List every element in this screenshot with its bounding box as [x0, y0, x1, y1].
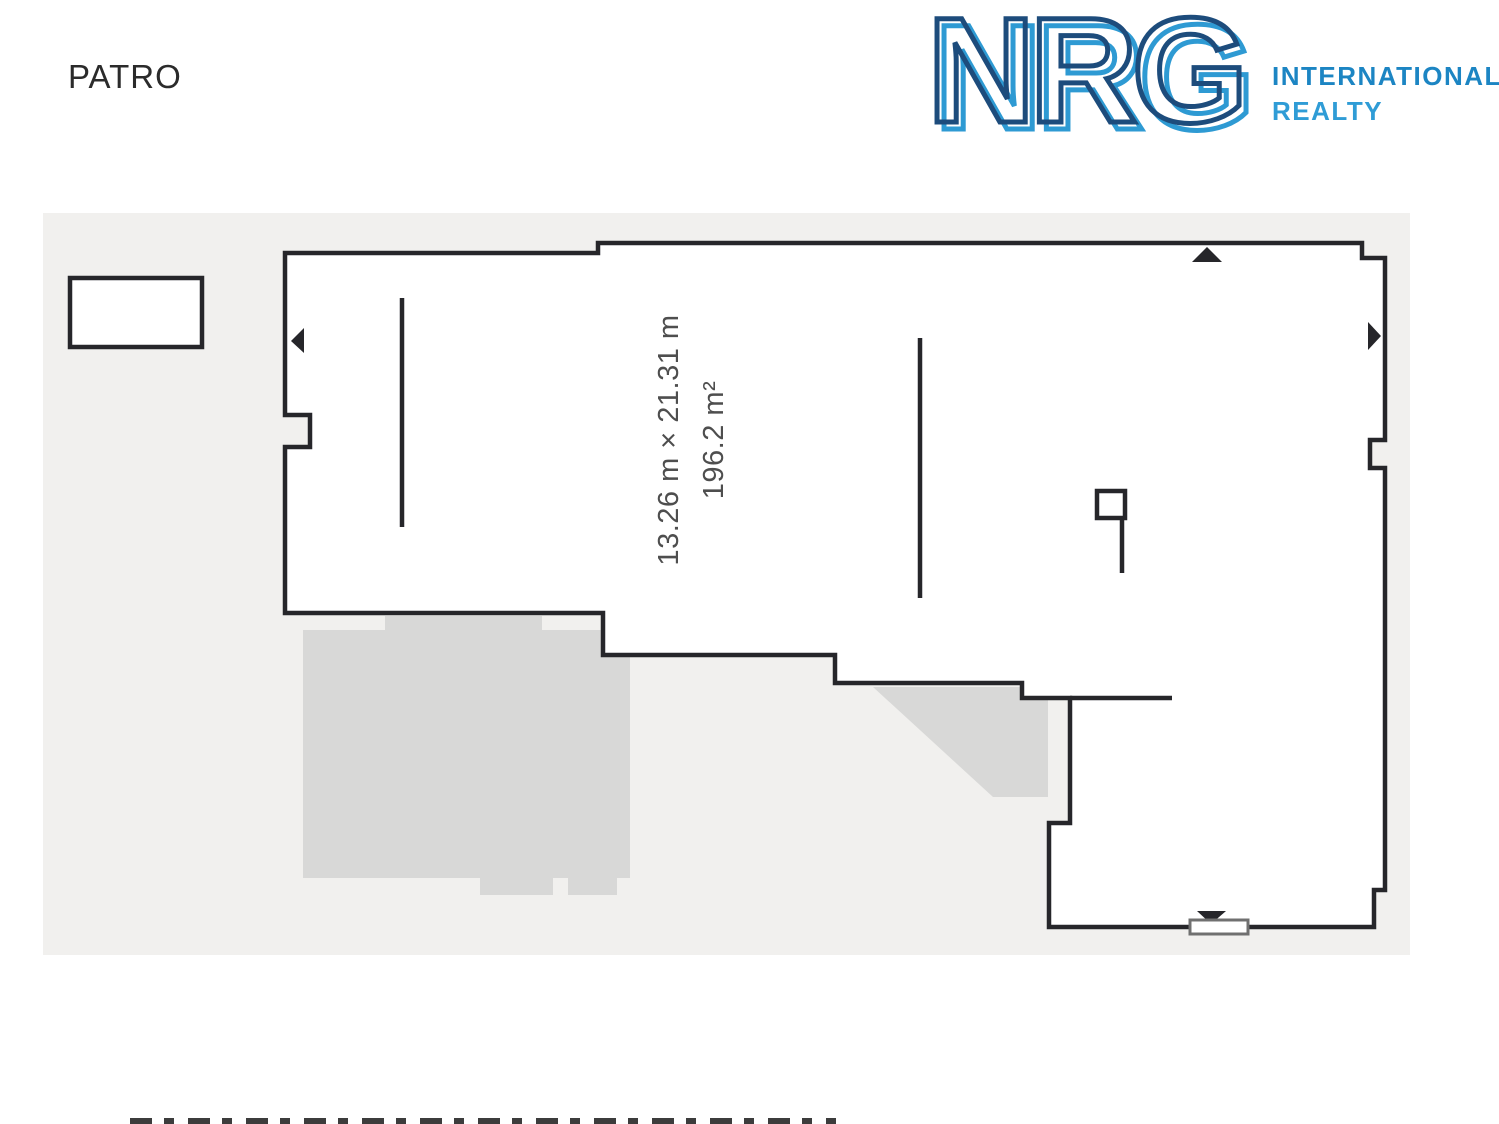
logo-wordmark: INTERNATIONAL REALTY [1272, 59, 1499, 129]
room-area-text: 196.2 m² [698, 381, 730, 499]
cropped-caption-sliver [130, 1118, 836, 1124]
lower-floor-underlay-triangle [873, 687, 1048, 797]
nrg-logo: NRG NRG [925, 8, 1265, 148]
logo-line-realty: REALTY [1272, 94, 1499, 129]
floor-plan-drawing: 13.26 m × 21.31 m 196.2 m² [43, 213, 1410, 955]
door-threshold [1190, 920, 1248, 934]
floor-plan-canvas: 13.26 m × 21.31 m 196.2 m² [43, 213, 1410, 955]
floor-plan-page: PATRO NRG NRG INTERNATIONAL REALTY [0, 0, 1499, 1124]
page-title: PATRO [68, 58, 182, 96]
detached-room [70, 278, 202, 347]
room-dimensions-text: 13.26 m × 21.31 m [653, 314, 685, 565]
logo-line-international: INTERNATIONAL [1272, 59, 1499, 94]
nrg-logo-dark-layer: NRG [927, 8, 1242, 148]
